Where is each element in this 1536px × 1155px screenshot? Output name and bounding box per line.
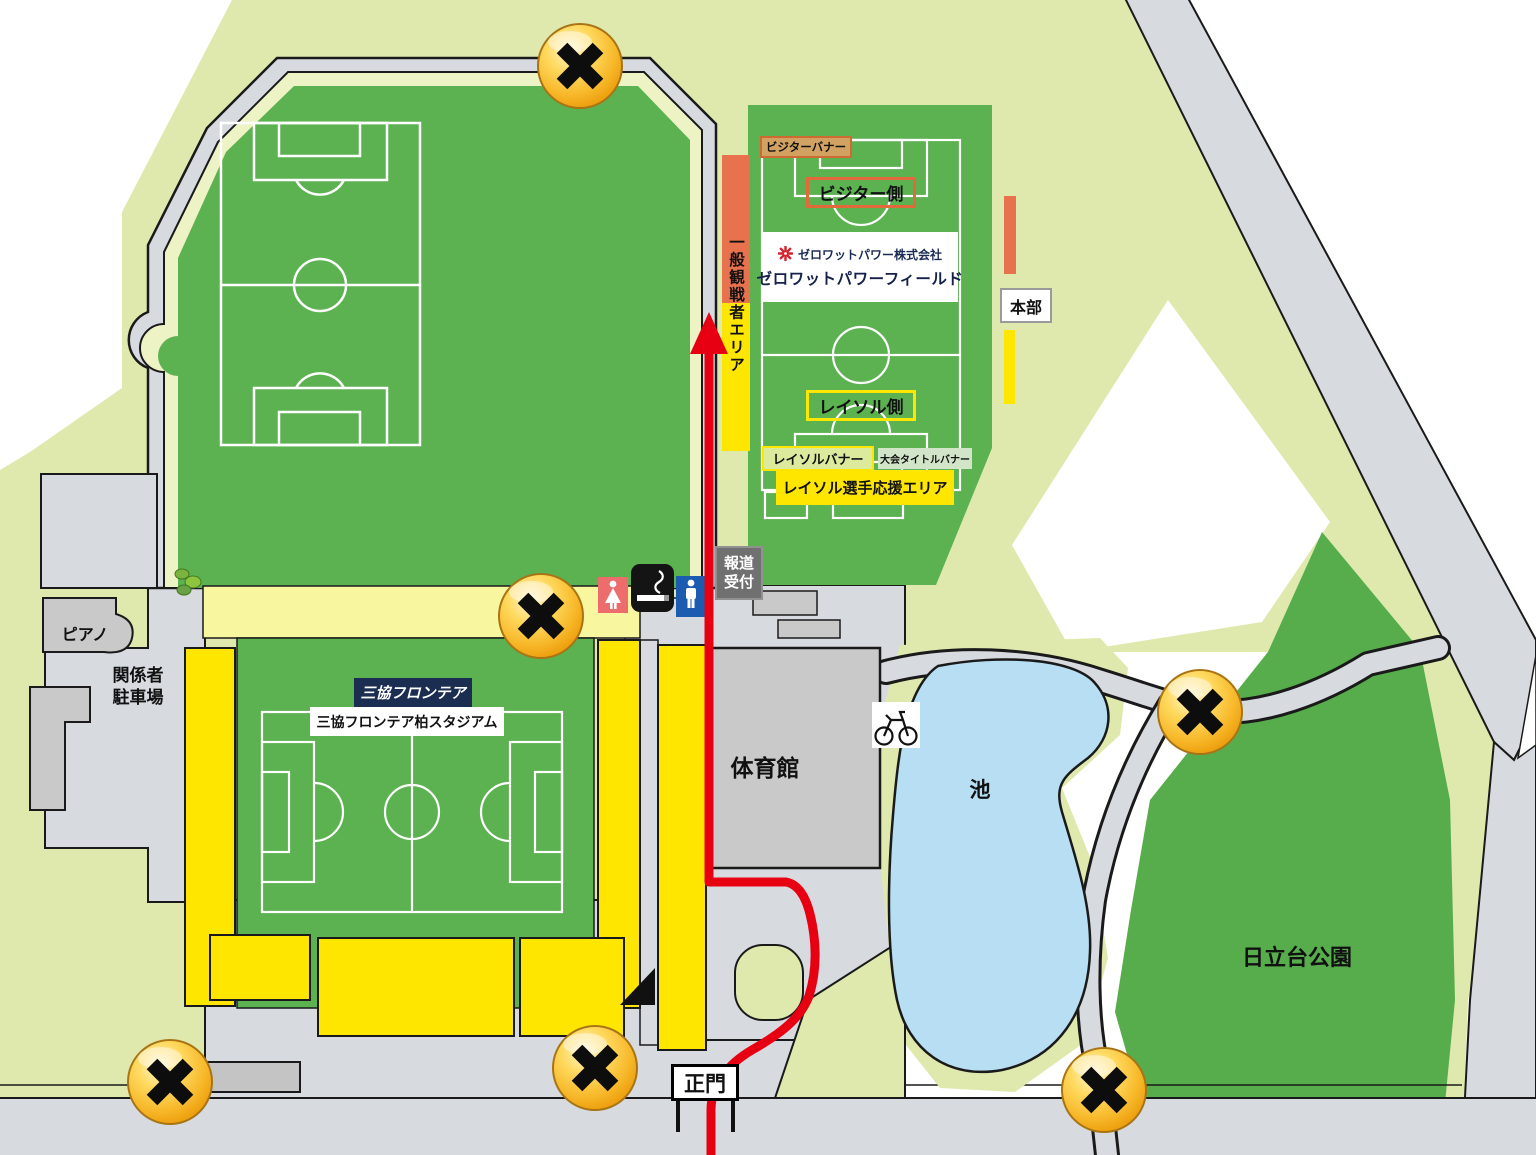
closed-x-marker-bottom-mid <box>553 1026 637 1110</box>
court-building <box>41 474 157 588</box>
side-strip-orange <box>1004 196 1016 274</box>
smoking-area-icon <box>631 564 674 612</box>
closed-x-marker-mid <box>499 574 583 658</box>
female-toilet-icon <box>598 577 628 613</box>
path-island <box>735 945 803 1020</box>
reysol-banner-label: レイソルバナー <box>762 446 874 471</box>
visitor-side-box: ビジター側 <box>806 177 916 208</box>
closed-x-marker-bottom-right <box>1062 1048 1146 1132</box>
main-gate-sign: 正門 <box>671 1064 739 1101</box>
pond <box>889 659 1108 1071</box>
park-label: 日立台公園 <box>1212 942 1382 970</box>
closed-x-marker-park-upper <box>1158 670 1242 754</box>
visitor-banner-label: ビジターバナー <box>760 136 852 158</box>
company-emblem-icon <box>778 246 793 264</box>
small-building-2 <box>778 620 840 638</box>
training-field <box>158 86 690 588</box>
side-strip-yellow <box>1004 330 1015 404</box>
bicycle-parking-icon <box>872 702 920 748</box>
closed-x-marker-bottom-left <box>128 1040 212 1124</box>
staff-parking-line2: 駐車場 <box>113 687 164 709</box>
bottom-road <box>0 1098 1536 1155</box>
reysol-side-box: レイソル側 <box>806 390 916 421</box>
staff-parking-label: 関係者 駐車場 <box>93 664 183 710</box>
male-toilet-icon <box>676 576 706 617</box>
practice-field-name-label: ゼロワットパワーフィールド <box>757 267 964 289</box>
headquarters-box: 本部 <box>1000 288 1052 323</box>
gymnasium-label: 体育館 <box>700 752 830 780</box>
company-name-label: ゼロワットパワー株式会社 <box>798 246 942 263</box>
general-spectator-area-label: 一般観戦者エリア <box>722 158 750 450</box>
press-line2: 受付 <box>724 573 754 593</box>
piano-label: ピアノ <box>55 622 115 644</box>
staff-parking-line1: 関係者 <box>113 665 164 687</box>
press-reception-box: 報道 受付 <box>715 546 763 600</box>
stadium-name-label: 三協フロンテア柏スタジアム <box>310 707 504 736</box>
map-base <box>0 0 1536 1155</box>
stadium-sponsor-logo: 三協フロンテア <box>354 678 472 707</box>
pond-label: 池 <box>948 776 1012 802</box>
facility-map: ビジターバナー ビジター側 ゼロワットパワー株式会社 ゼロワットパワーフィールド… <box>0 0 1536 1155</box>
press-line1: 報道 <box>724 554 754 574</box>
closed-x-marker-top <box>538 24 622 108</box>
tournament-title-banner-label: 大会タイトルバナー <box>878 448 972 469</box>
reysol-support-area-label: レイソル選手応援エリア <box>776 470 954 505</box>
practice-field-name-box: ゼロワットパワー株式会社 ゼロワットパワーフィールド <box>762 232 958 302</box>
